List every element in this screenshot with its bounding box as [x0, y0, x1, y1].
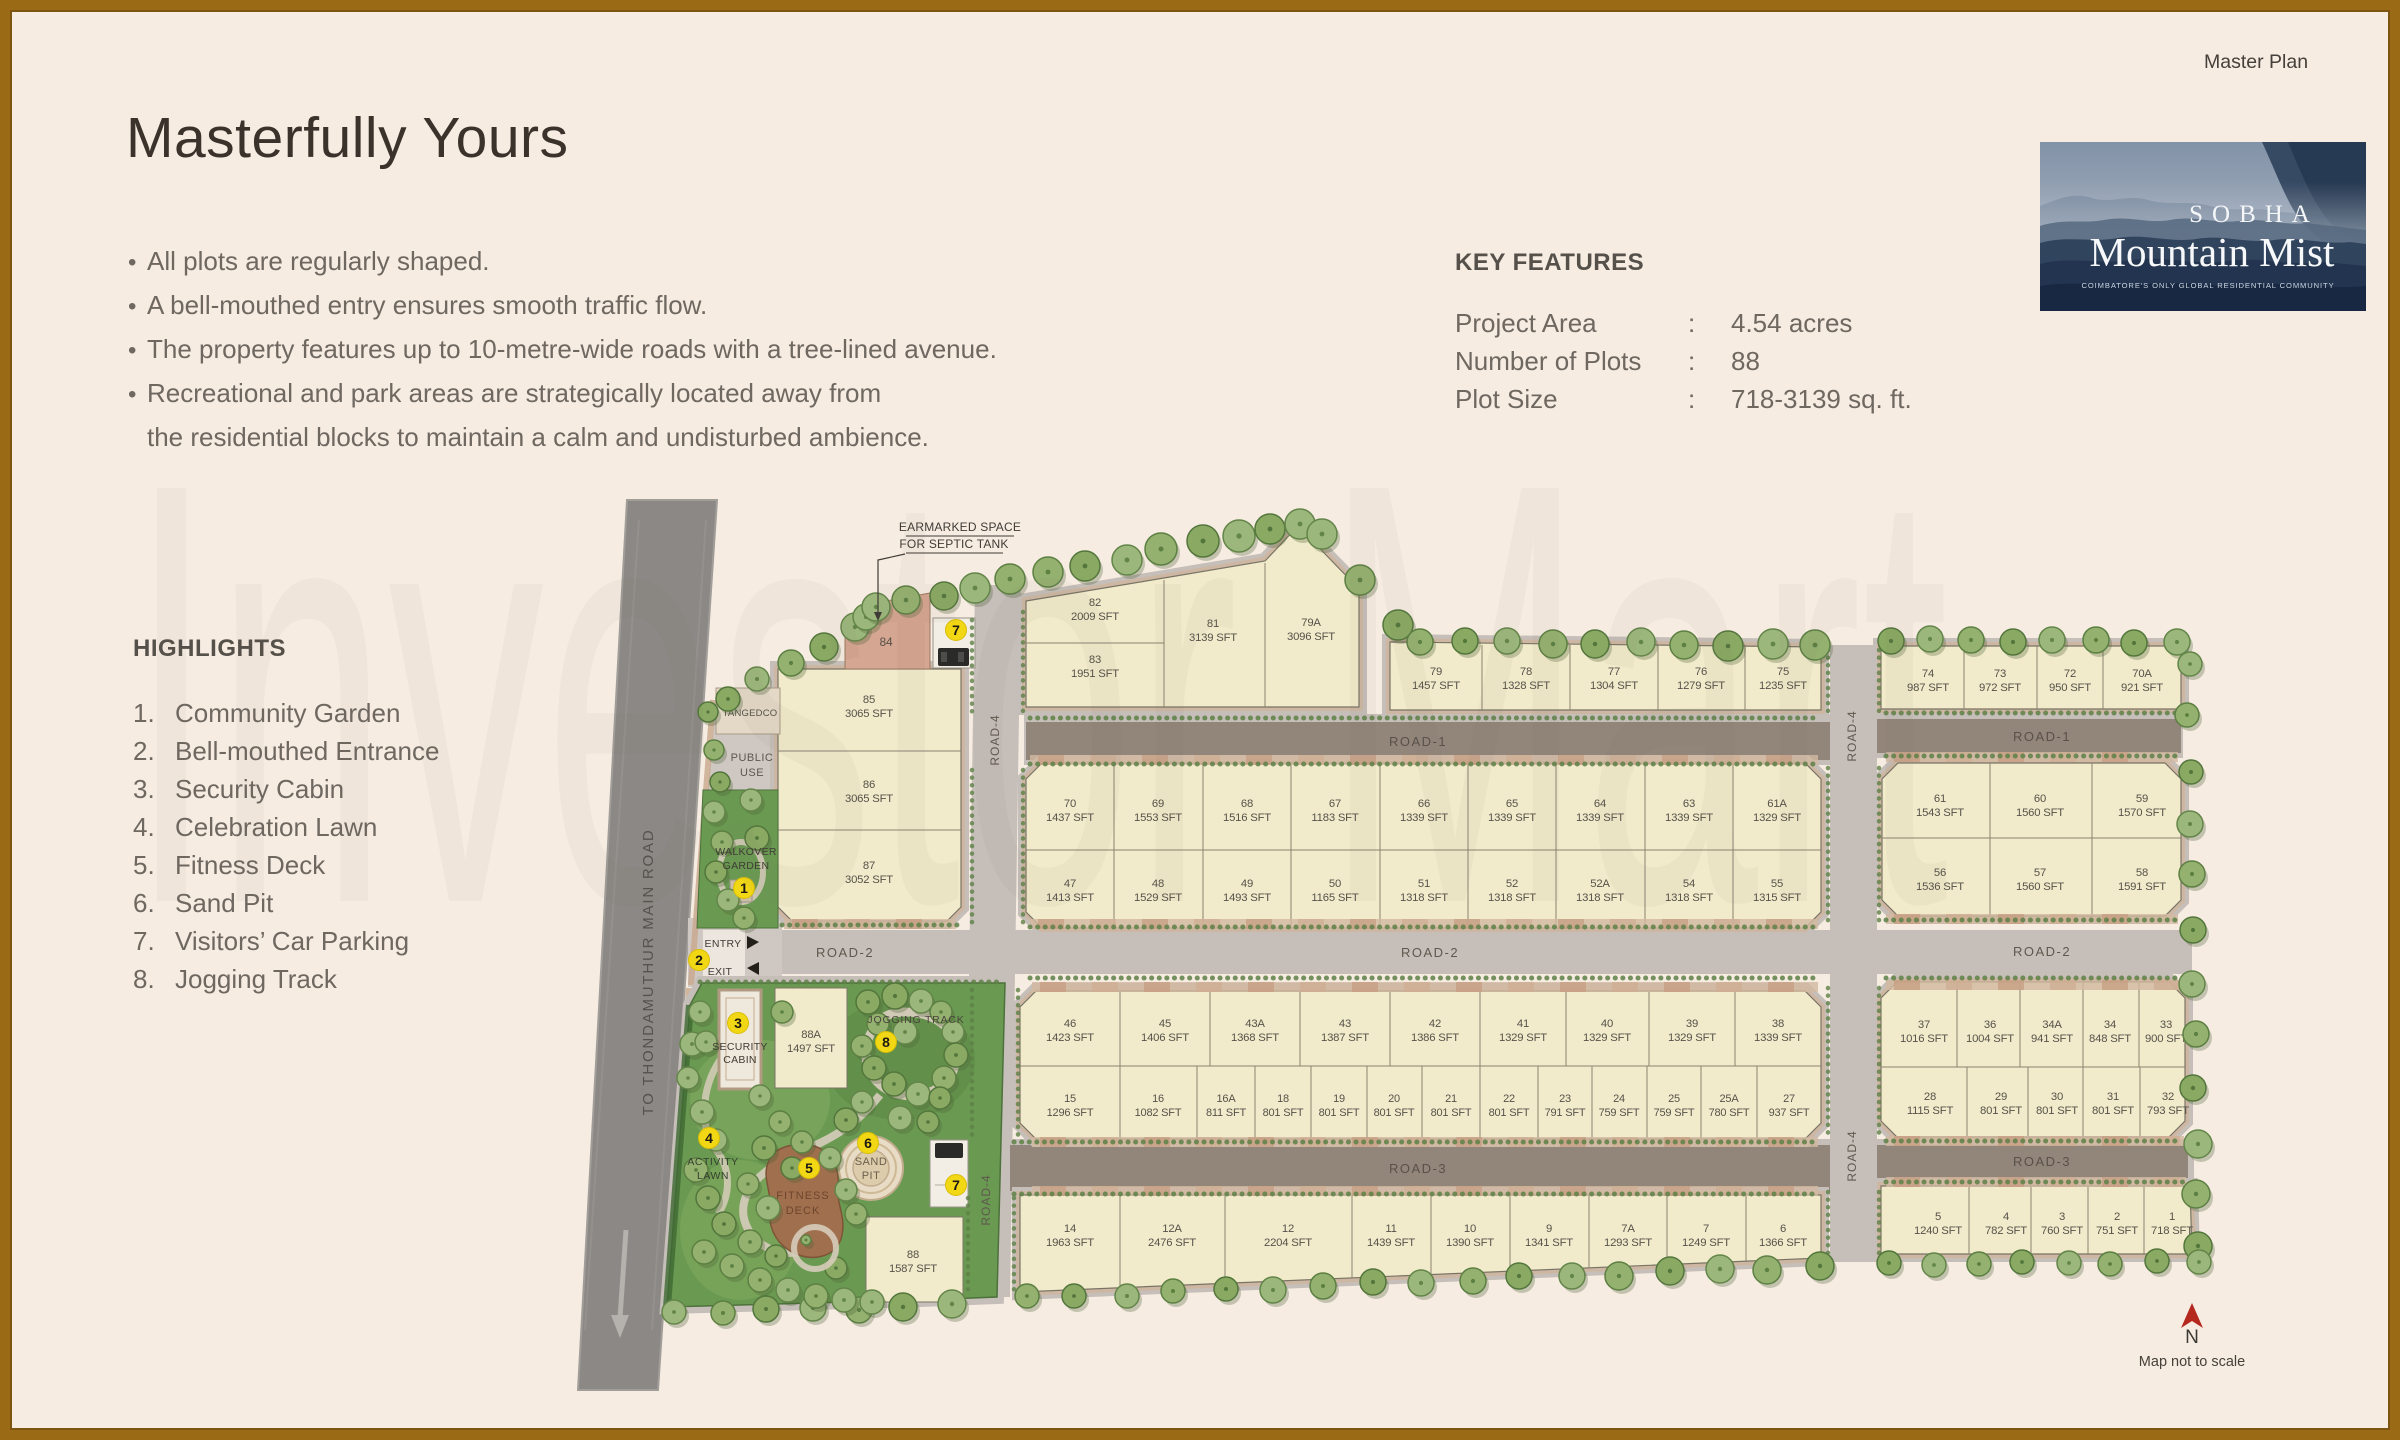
svg-text:42: 42: [1429, 1018, 1441, 1030]
svg-text:61A: 61A: [1767, 798, 1787, 810]
svg-text:1304 SFT: 1304 SFT: [1590, 680, 1638, 692]
svg-text:6: 6: [1780, 1223, 1786, 1235]
svg-text:34A: 34A: [2042, 1019, 2062, 1031]
svg-text:1951 SFT: 1951 SFT: [1071, 668, 1119, 680]
svg-text:1560 SFT: 1560 SFT: [2016, 807, 2064, 819]
svg-text:52: 52: [1506, 878, 1518, 890]
svg-text:1318 SFT: 1318 SFT: [1576, 892, 1624, 904]
svg-text:751 SFT: 751 SFT: [2096, 1225, 2138, 1237]
svg-text:811 SFT: 811 SFT: [1206, 1107, 1246, 1119]
svg-text:84: 84: [880, 635, 893, 649]
svg-text:759 SFT: 759 SFT: [1654, 1107, 1695, 1119]
svg-text:1: 1: [740, 880, 748, 896]
svg-text:1368 SFT: 1368 SFT: [1231, 1032, 1279, 1044]
svg-text:FOR SEPTIC TANK: FOR SEPTIC TANK: [899, 537, 1008, 551]
svg-text:21: 21: [1445, 1093, 1457, 1105]
svg-text:1387 SFT: 1387 SFT: [1321, 1032, 1369, 1044]
svg-text:58: 58: [2136, 867, 2148, 879]
svg-text:801 SFT: 801 SFT: [1431, 1107, 1472, 1119]
svg-text:75: 75: [1777, 666, 1789, 678]
svg-text:1318 SFT: 1318 SFT: [1488, 892, 1536, 904]
svg-text:1423 SFT: 1423 SFT: [1046, 1032, 1094, 1044]
svg-text:EXIT: EXIT: [708, 966, 733, 978]
svg-text:7: 7: [952, 1177, 960, 1193]
svg-text:987 SFT: 987 SFT: [1907, 682, 1949, 694]
svg-text:ACTIVITY: ACTIVITY: [687, 1156, 738, 1168]
svg-text:1315 SFT: 1315 SFT: [1753, 892, 1801, 904]
svg-text:1963 SFT: 1963 SFT: [1046, 1237, 1094, 1249]
svg-text:801 SFT: 801 SFT: [1980, 1105, 2022, 1117]
svg-text:ROAD-2: ROAD-2: [816, 945, 874, 960]
svg-text:791 SFT: 791 SFT: [1545, 1107, 1586, 1119]
svg-text:9: 9: [1546, 1223, 1552, 1235]
svg-text:780 SFT: 780 SFT: [1709, 1107, 1750, 1119]
svg-text:47: 47: [1064, 878, 1076, 890]
svg-text:1570 SFT: 1570 SFT: [2118, 807, 2166, 819]
svg-text:39: 39: [1686, 1018, 1698, 1030]
svg-text:36: 36: [1984, 1019, 1996, 1031]
svg-text:25: 25: [1668, 1093, 1680, 1105]
svg-text:1366 SFT: 1366 SFT: [1759, 1237, 1807, 1249]
svg-text:EARMARKED SPACE: EARMARKED SPACE: [899, 520, 1021, 534]
svg-text:FITNESS: FITNESS: [776, 1190, 829, 1202]
svg-text:ROAD-3: ROAD-3: [2013, 1154, 2071, 1169]
svg-text:1183 SFT: 1183 SFT: [1311, 812, 1358, 824]
svg-text:1497 SFT: 1497 SFT: [787, 1043, 835, 1055]
svg-text:5: 5: [805, 1160, 813, 1176]
svg-text:3: 3: [2059, 1211, 2065, 1223]
svg-text:937 SFT: 937 SFT: [1769, 1107, 1810, 1119]
svg-text:1329 SFT: 1329 SFT: [1753, 812, 1801, 824]
svg-text:1437 SFT: 1437 SFT: [1046, 812, 1094, 824]
svg-text:81: 81: [1207, 618, 1219, 630]
svg-text:Mountain Mist: Mountain Mist: [2090, 229, 2335, 275]
svg-text:3052 SFT: 3052 SFT: [845, 874, 893, 886]
svg-text:DECK: DECK: [786, 1205, 821, 1217]
svg-text:66: 66: [1418, 798, 1430, 810]
svg-text:1296 SFT: 1296 SFT: [1047, 1107, 1094, 1119]
svg-text:12A: 12A: [1162, 1223, 1182, 1235]
svg-text:1082 SFT: 1082 SFT: [1135, 1107, 1182, 1119]
svg-text:1406 SFT: 1406 SFT: [1141, 1032, 1189, 1044]
svg-text:6: 6: [864, 1135, 872, 1151]
svg-text:54: 54: [1683, 878, 1695, 890]
svg-text:1249 SFT: 1249 SFT: [1682, 1237, 1730, 1249]
svg-text:43: 43: [1339, 1018, 1351, 1030]
svg-text:3096 SFT: 3096 SFT: [1287, 631, 1335, 643]
svg-text:77: 77: [1608, 666, 1620, 678]
svg-text:801 SFT: 801 SFT: [1374, 1107, 1415, 1119]
svg-text:759 SFT: 759 SFT: [1599, 1107, 1640, 1119]
svg-text:793 SFT: 793 SFT: [2147, 1105, 2189, 1117]
svg-text:5: 5: [1935, 1211, 1941, 1223]
svg-text:12: 12: [1282, 1223, 1294, 1235]
svg-text:1543 SFT: 1543 SFT: [1916, 807, 1964, 819]
svg-text:ROAD-1: ROAD-1: [2013, 729, 2071, 744]
svg-text:16A: 16A: [1217, 1093, 1237, 1105]
svg-text:1536 SFT: 1536 SFT: [1916, 881, 1964, 893]
svg-text:ROAD-4: ROAD-4: [1845, 1130, 1859, 1181]
svg-text:88A: 88A: [801, 1029, 821, 1041]
svg-text:1457 SFT: 1457 SFT: [1412, 680, 1460, 692]
svg-text:ROAD-1: ROAD-1: [1389, 734, 1447, 749]
svg-text:SAND: SAND: [855, 1156, 888, 1168]
svg-text:28: 28: [1924, 1091, 1936, 1103]
svg-text:76: 76: [1695, 666, 1707, 678]
svg-text:1560 SFT: 1560 SFT: [2016, 881, 2064, 893]
svg-text:1004 SFT: 1004 SFT: [1966, 1033, 2014, 1045]
svg-text:801 SFT: 801 SFT: [2036, 1105, 2078, 1117]
svg-text:1390 SFT: 1390 SFT: [1446, 1237, 1494, 1249]
svg-text:64: 64: [1594, 798, 1606, 810]
svg-text:1293 SFT: 1293 SFT: [1604, 1237, 1652, 1249]
svg-text:1235 SFT: 1235 SFT: [1759, 680, 1807, 692]
svg-text:52A: 52A: [1590, 878, 1610, 890]
svg-text:15: 15: [1064, 1093, 1076, 1105]
svg-text:11: 11: [1385, 1223, 1396, 1235]
svg-text:1318 SFT: 1318 SFT: [1400, 892, 1448, 904]
svg-text:79A: 79A: [1301, 617, 1321, 629]
svg-text:USE: USE: [740, 767, 764, 779]
svg-text:921 SFT: 921 SFT: [2121, 682, 2163, 694]
svg-text:ROAD-4: ROAD-4: [979, 1174, 993, 1225]
svg-text:ROAD-3: ROAD-3: [1389, 1161, 1447, 1176]
svg-text:SOBHA: SOBHA: [2189, 201, 2319, 228]
svg-text:48: 48: [1152, 878, 1164, 890]
svg-text:2204 SFT: 2204 SFT: [1264, 1237, 1312, 1249]
svg-text:3065 SFT: 3065 SFT: [845, 793, 893, 805]
svg-text:1165 SFT: 1165 SFT: [1311, 892, 1358, 904]
svg-text:60: 60: [2034, 793, 2046, 805]
svg-text:718 SFT: 718 SFT: [2151, 1225, 2193, 1237]
svg-text:801 SFT: 801 SFT: [1319, 1107, 1360, 1119]
svg-text:1529 SFT: 1529 SFT: [1134, 892, 1182, 904]
svg-text:61: 61: [1934, 793, 1946, 805]
svg-text:ROAD-2: ROAD-2: [1401, 945, 1459, 960]
svg-text:1386 SFT: 1386 SFT: [1411, 1032, 1459, 1044]
svg-text:801 SFT: 801 SFT: [1263, 1107, 1304, 1119]
svg-text:1329 SFT: 1329 SFT: [1668, 1032, 1716, 1044]
svg-text:65: 65: [1506, 798, 1518, 810]
svg-text:50: 50: [1329, 878, 1341, 890]
svg-text:ROAD-2: ROAD-2: [2013, 944, 2071, 959]
svg-text:1318 SFT: 1318 SFT: [1665, 892, 1713, 904]
svg-text:7: 7: [952, 622, 960, 638]
svg-text:950 SFT: 950 SFT: [2049, 682, 2091, 694]
svg-text:1240 SFT: 1240 SFT: [1914, 1225, 1962, 1237]
svg-text:56: 56: [1934, 867, 1946, 879]
svg-text:79: 79: [1430, 666, 1442, 678]
svg-text:83: 83: [1089, 654, 1101, 666]
svg-text:WALKOVER: WALKOVER: [715, 846, 777, 858]
svg-text:4: 4: [2003, 1211, 2009, 1223]
svg-text:2476 SFT: 2476 SFT: [1148, 1237, 1196, 1249]
svg-text:59: 59: [2136, 793, 2148, 805]
svg-text:57: 57: [2034, 867, 2046, 879]
svg-text:1328 SFT: 1328 SFT: [1502, 680, 1550, 692]
svg-text:PIT: PIT: [862, 1170, 881, 1182]
svg-text:45: 45: [1159, 1018, 1171, 1030]
svg-text:1115 SFT: 1115 SFT: [1907, 1105, 1954, 1117]
svg-text:40: 40: [1601, 1018, 1613, 1030]
svg-text:1516 SFT: 1516 SFT: [1223, 812, 1271, 824]
svg-text:31: 31: [2107, 1091, 2119, 1103]
svg-text:27: 27: [1783, 1093, 1795, 1105]
svg-text:GARDEN: GARDEN: [723, 860, 770, 872]
svg-text:32: 32: [2162, 1091, 2174, 1103]
svg-text:COIMBATORE'S ONLY GLOBAL RESID: COIMBATORE'S ONLY GLOBAL RESIDENTIAL COM…: [2081, 281, 2334, 290]
svg-text:10: 10: [1464, 1223, 1476, 1235]
svg-text:25A: 25A: [1720, 1093, 1740, 1105]
svg-text:4: 4: [705, 1130, 713, 1146]
svg-text:ENTRY: ENTRY: [705, 938, 742, 950]
svg-text:1341 SFT: 1341 SFT: [1525, 1237, 1573, 1249]
svg-text:900 SFT: 900 SFT: [2145, 1033, 2187, 1045]
svg-text:18: 18: [1277, 1093, 1289, 1105]
svg-text:19: 19: [1333, 1093, 1345, 1105]
svg-text:1279 SFT: 1279 SFT: [1677, 680, 1725, 692]
svg-text:1439 SFT: 1439 SFT: [1367, 1237, 1415, 1249]
svg-text:1339 SFT: 1339 SFT: [1665, 812, 1713, 824]
svg-text:3139 SFT: 3139 SFT: [1189, 632, 1237, 644]
svg-text:73: 73: [1994, 668, 2006, 680]
svg-text:70: 70: [1064, 798, 1076, 810]
svg-text:2009 SFT: 2009 SFT: [1071, 611, 1119, 623]
svg-text:1339 SFT: 1339 SFT: [1400, 812, 1448, 824]
svg-text:ROAD-4: ROAD-4: [1845, 710, 1859, 761]
svg-text:14: 14: [1064, 1223, 1076, 1235]
svg-text:43A: 43A: [1245, 1018, 1265, 1030]
svg-text:Map not to scale: Map not to scale: [2139, 1354, 2245, 1370]
svg-text:82: 82: [1089, 597, 1101, 609]
svg-text:N: N: [2185, 1327, 2199, 1348]
svg-text:34: 34: [2104, 1019, 2116, 1031]
svg-text:801 SFT: 801 SFT: [2092, 1105, 2134, 1117]
svg-text:1: 1: [2169, 1211, 2175, 1223]
svg-text:30: 30: [2051, 1091, 2063, 1103]
svg-text:LAWN: LAWN: [697, 1170, 729, 1182]
svg-text:760 SFT: 760 SFT: [2041, 1225, 2083, 1237]
svg-text:1591 SFT: 1591 SFT: [2118, 881, 2166, 893]
svg-text:941 SFT: 941 SFT: [2031, 1033, 2073, 1045]
svg-text:87: 87: [863, 860, 875, 872]
svg-text:ROAD-4: ROAD-4: [988, 714, 1002, 765]
svg-text:49: 49: [1241, 878, 1253, 890]
svg-text:JOGGING TRACK: JOGGING TRACK: [867, 1014, 964, 1026]
svg-text:29: 29: [1995, 1091, 2007, 1103]
svg-text:2: 2: [695, 952, 703, 968]
svg-text:88: 88: [907, 1249, 919, 1261]
svg-text:46: 46: [1064, 1018, 1076, 1030]
svg-text:TO THONDAMUTHUR MAIN ROAD: TO THONDAMUTHUR MAIN ROAD: [640, 829, 657, 1116]
svg-text:1329 SFT: 1329 SFT: [1583, 1032, 1631, 1044]
svg-text:801 SFT: 801 SFT: [1489, 1107, 1530, 1119]
svg-text:38: 38: [1772, 1018, 1784, 1030]
svg-text:3065 SFT: 3065 SFT: [845, 708, 893, 720]
svg-text:41: 41: [1517, 1018, 1529, 1030]
svg-text:782 SFT: 782 SFT: [1985, 1225, 2027, 1237]
svg-text:33: 33: [2160, 1019, 2172, 1031]
svg-text:1587 SFT: 1587 SFT: [889, 1263, 937, 1275]
svg-text:1553 SFT: 1553 SFT: [1134, 812, 1182, 824]
svg-text:22: 22: [1503, 1093, 1515, 1105]
svg-text:37: 37: [1918, 1019, 1930, 1031]
svg-text:848 SFT: 848 SFT: [2089, 1033, 2131, 1045]
svg-text:67: 67: [1329, 798, 1341, 810]
svg-text:1016 SFT: 1016 SFT: [1900, 1033, 1948, 1045]
svg-text:1493 SFT: 1493 SFT: [1223, 892, 1271, 904]
svg-text:972 SFT: 972 SFT: [1979, 682, 2021, 694]
svg-text:85: 85: [863, 694, 875, 706]
svg-text:70A: 70A: [2132, 668, 2152, 680]
svg-text:74: 74: [1922, 668, 1934, 680]
svg-text:CABIN: CABIN: [723, 1054, 757, 1066]
svg-text:78: 78: [1520, 666, 1532, 678]
svg-text:1339 SFT: 1339 SFT: [1576, 812, 1624, 824]
svg-text:1329 SFT: 1329 SFT: [1499, 1032, 1547, 1044]
svg-text:1339 SFT: 1339 SFT: [1488, 812, 1536, 824]
svg-text:1413 SFT: 1413 SFT: [1046, 892, 1094, 904]
svg-text:55: 55: [1771, 878, 1783, 890]
svg-text:SECURITY: SECURITY: [712, 1041, 768, 1053]
svg-text:PUBLIC: PUBLIC: [731, 752, 774, 764]
svg-text:16: 16: [1152, 1093, 1164, 1105]
svg-text:69: 69: [1152, 798, 1164, 810]
svg-text:23: 23: [1559, 1093, 1571, 1105]
svg-text:68: 68: [1241, 798, 1253, 810]
svg-text:2: 2: [2114, 1211, 2120, 1223]
svg-text:24: 24: [1613, 1093, 1625, 1105]
svg-text:63: 63: [1683, 798, 1695, 810]
svg-text:1339 SFT: 1339 SFT: [1754, 1032, 1802, 1044]
svg-text:51: 51: [1418, 878, 1430, 890]
svg-text:3: 3: [734, 1015, 742, 1031]
svg-text:20: 20: [1388, 1093, 1400, 1105]
svg-text:7A: 7A: [1621, 1223, 1635, 1235]
svg-text:8: 8: [882, 1034, 890, 1050]
svg-text:7: 7: [1703, 1223, 1709, 1235]
svg-text:86: 86: [863, 779, 875, 791]
svg-text:72: 72: [2064, 668, 2076, 680]
